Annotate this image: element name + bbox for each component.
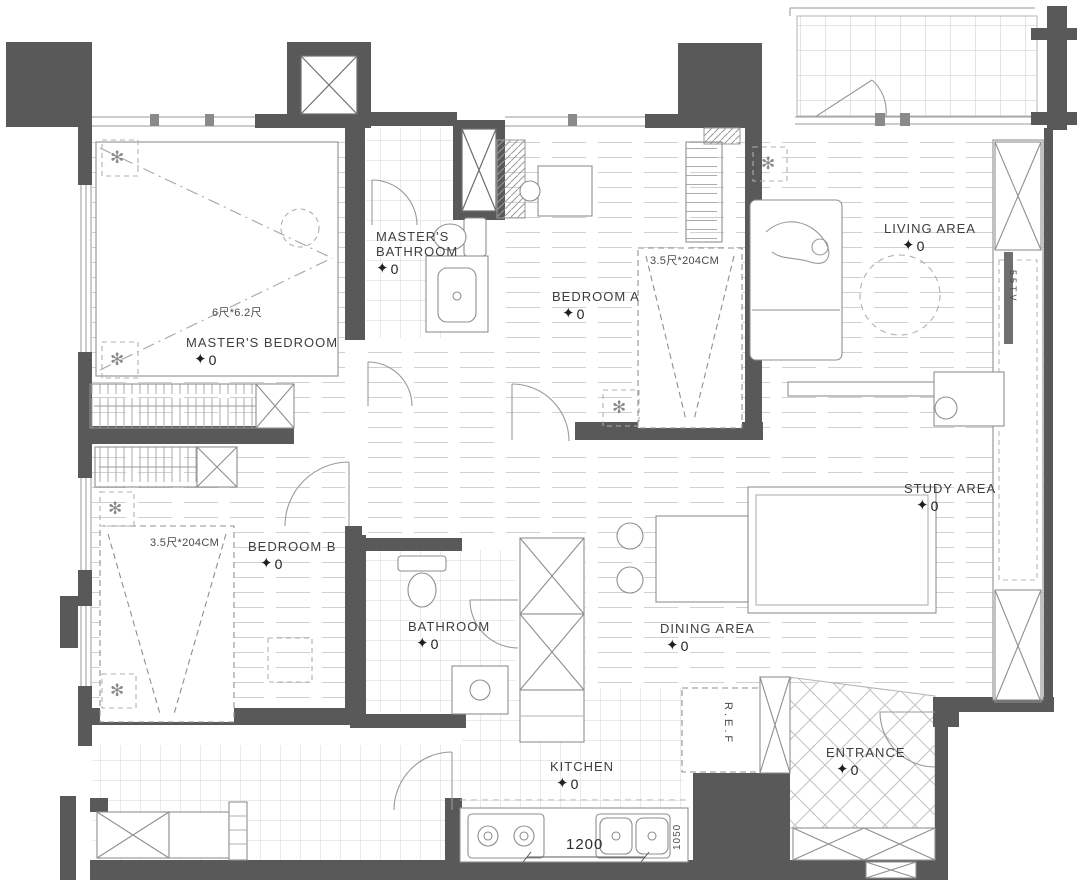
bedroom-a-bed	[638, 248, 742, 428]
bedroom-a-wardrobe	[686, 142, 722, 242]
room-label-living-area: LIVING AREA ✦ 0	[884, 222, 976, 254]
ceiling-fan-icon: ✻	[110, 351, 124, 368]
wall-right	[1044, 128, 1053, 702]
floor-plan-drawing	[0, 0, 1080, 895]
room-label-dining-area: DINING AREA ✦ 0	[660, 622, 755, 654]
annotation-bed-b-size: 3.5尺*204CM	[150, 534, 219, 550]
wall-corner-top-left	[6, 42, 92, 127]
dining-table	[656, 516, 748, 602]
level-marker-icon: ✦	[376, 261, 390, 276]
room-label-kitchen: KITCHEN ✦ 0	[550, 760, 614, 792]
wall-master-bottom	[78, 426, 294, 444]
annotation-dim-1050: 1050	[672, 824, 683, 850]
chair	[617, 523, 643, 549]
ceiling-fan-icon: ✻	[108, 500, 122, 517]
hall-closet	[520, 538, 584, 742]
level-marker: ✦ 0	[376, 261, 472, 277]
level-marker: ✦ 0	[902, 238, 976, 254]
annotation-bed-a-size: 3.5尺*204CM	[650, 252, 719, 268]
study-desk	[934, 372, 1004, 426]
column-top-2	[678, 43, 762, 128]
column-top-right	[1047, 6, 1067, 130]
room-label-bedroom-b: BEDROOM B ✦ 0	[248, 540, 336, 572]
ceiling-fan-icon: ✻	[761, 155, 775, 172]
annotation-refrigerator: R.E.F	[722, 702, 734, 745]
level-marker-icon: ✦	[666, 638, 680, 653]
room-label-study-area: STUDY AREA ✦ 0	[904, 482, 996, 514]
bathroom-sink-icon	[452, 666, 508, 714]
wall-entrance-block	[693, 773, 790, 861]
wall-masterbath	[345, 112, 365, 340]
level-marker-icon: ✦	[902, 238, 916, 253]
level-marker: ✦ 0	[556, 776, 614, 792]
level-marker-icon: ✦	[562, 306, 576, 321]
annotation-dim-1200: 1200	[566, 836, 603, 853]
master-wardrobe	[90, 384, 294, 428]
entrance-closet-strip	[760, 677, 790, 773]
floor-plan: MASTER'S BEDROOM ✦ 0 MASTER'S BATHROOM ✦…	[0, 0, 1080, 895]
chair	[617, 567, 643, 593]
bedroom-b-wardrobe	[95, 447, 237, 487]
room-label-masters-bedroom: MASTER'S BEDROOM ✦ 0	[186, 336, 338, 368]
sofa	[750, 200, 842, 360]
annotation-master-bed-size: 6尺*6.2尺	[212, 304, 262, 320]
ceiling-fan-icon: ✻	[110, 682, 124, 699]
level-marker: ✦ 0	[836, 762, 906, 778]
room-label-masters-bathroom: MASTER'S BATHROOM ✦ 0	[376, 230, 472, 277]
room-label-bathroom: BATHROOM ✦ 0	[408, 620, 490, 652]
level-marker-icon: ✦	[194, 352, 208, 367]
level-marker: ✦ 0	[666, 638, 755, 654]
level-marker-icon: ✦	[260, 556, 274, 571]
room-label-bedroom-a: BEDROOM A ✦ 0	[552, 290, 640, 322]
level-marker: ✦ 0	[562, 306, 640, 322]
annotation-tv-size: 55TV	[1008, 270, 1018, 304]
level-marker-icon: ✦	[416, 636, 430, 651]
room-label-entrance: ENTRANCE ✦ 0	[826, 746, 906, 778]
level-marker: ✦ 0	[916, 498, 996, 514]
level-marker: ✦ 0	[416, 636, 490, 652]
ceiling-fan-icon: ✻	[110, 149, 124, 166]
level-marker-icon: ✦	[556, 776, 570, 791]
level-marker-icon: ✦	[836, 762, 850, 777]
wall-bottom	[90, 860, 948, 880]
level-marker: ✦ 0	[194, 352, 338, 368]
level-marker-icon: ✦	[916, 498, 930, 513]
ceiling-fan-icon: ✻	[612, 399, 626, 416]
level-marker: ✦ 0	[260, 556, 336, 572]
